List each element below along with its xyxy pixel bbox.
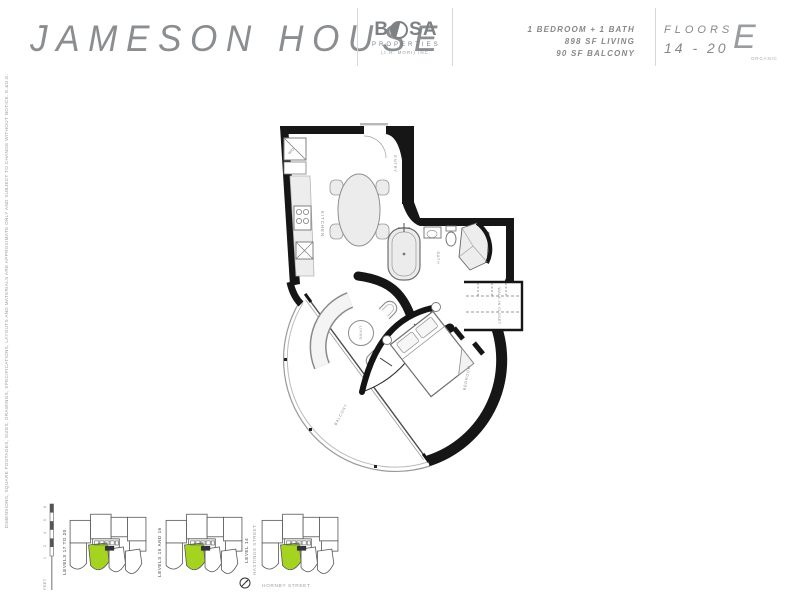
plan-code: E ORGANIC (733, 18, 756, 57)
keyplan-levels-17-20 (66, 503, 148, 589)
svg-text:0: 0 (43, 557, 47, 559)
floorplan-sheet: DIMENSIONS, SQUARE FOOTAGES, SIZES, DRAW… (0, 0, 789, 610)
bosa-logo-wordmark: BSA (372, 20, 440, 40)
bosa-letters-sa: SA (409, 20, 437, 40)
plan-letter: E (733, 18, 756, 56)
unit-living-area: 898 SF LIVING (455, 36, 635, 48)
kitchen-label: KITCHEN (320, 211, 325, 237)
keyplan-label-level-14: LEVEL 14 (244, 538, 249, 563)
unit-bed-bath: 1 BEDROOM + 1 BATH (455, 24, 635, 36)
bath-sink (424, 227, 441, 238)
toilet (446, 232, 456, 246)
walk-in-closet: WALK-IN CLOSET (464, 282, 522, 330)
hastings-street-label: HASTINGS STREET (252, 525, 257, 575)
header-divider (357, 8, 358, 66)
entry-label: ENTRY (393, 155, 398, 172)
balcony-label: BALCONY (334, 403, 349, 426)
header-divider (452, 8, 453, 66)
walk-in-closet-label: WALK-IN CLOSET (497, 287, 501, 325)
entry: ENTRY (364, 136, 398, 173)
floor-plan-drawing: WALK-IN CLOSET W/D KITCHEN (262, 112, 547, 492)
bosa-properties-label: PROPERTIES (372, 42, 440, 48)
unit-balcony-area: 90 SF BALCONY (455, 48, 635, 60)
disclaimer-text: DIMENSIONS, SQUARE FOOTAGES, SIZES, DRAW… (4, 56, 12, 546)
bath-label: BATH (436, 251, 440, 264)
floors-label: FLOORS (664, 24, 733, 36)
svg-text:6: 6 (43, 519, 47, 521)
bosa-subtitle: (J.H. MORI) INC. (372, 50, 440, 55)
plan-name: ORGANIC (751, 56, 778, 61)
bosa-letter-b: B (374, 20, 389, 40)
header-divider (655, 8, 656, 66)
nightstand (383, 336, 392, 345)
unit-summary: 1 BEDROOM + 1 BATH 898 SF LIVING 90 SF B… (455, 24, 635, 60)
toilet-tank (446, 226, 456, 231)
bedroom: BEDROOM (362, 303, 474, 397)
nightstand (432, 303, 441, 312)
hornby-street-label: HORNBY STREET (262, 584, 311, 589)
living-label: LIVING (359, 326, 363, 340)
svg-text:2: 2 (43, 545, 47, 547)
bathroom: BATH (388, 223, 490, 280)
bosa-half-moon-o-icon (390, 21, 408, 39)
bosa-logo: BSA PROPERTIES (J.H. MORI) INC. (372, 20, 440, 55)
kitchen: W/D KITCHEN (284, 138, 389, 276)
scale-unit-label: FEET (43, 578, 47, 589)
keyplan-level-14 (258, 503, 340, 589)
scale-bar: 8 6 4 2 0 FEET (36, 500, 60, 605)
armchair (379, 298, 400, 319)
floors-block: FLOORS 14 - 20 (664, 24, 733, 56)
keyplan-levels-15-16 (162, 503, 244, 589)
svg-text:4: 4 (43, 532, 47, 534)
floors-range: 14 - 20 (664, 40, 733, 56)
north-compass-icon (238, 576, 252, 595)
svg-text:8: 8 (43, 506, 47, 508)
main-floor-plan: WALK-IN CLOSET W/D KITCHEN (262, 112, 547, 497)
